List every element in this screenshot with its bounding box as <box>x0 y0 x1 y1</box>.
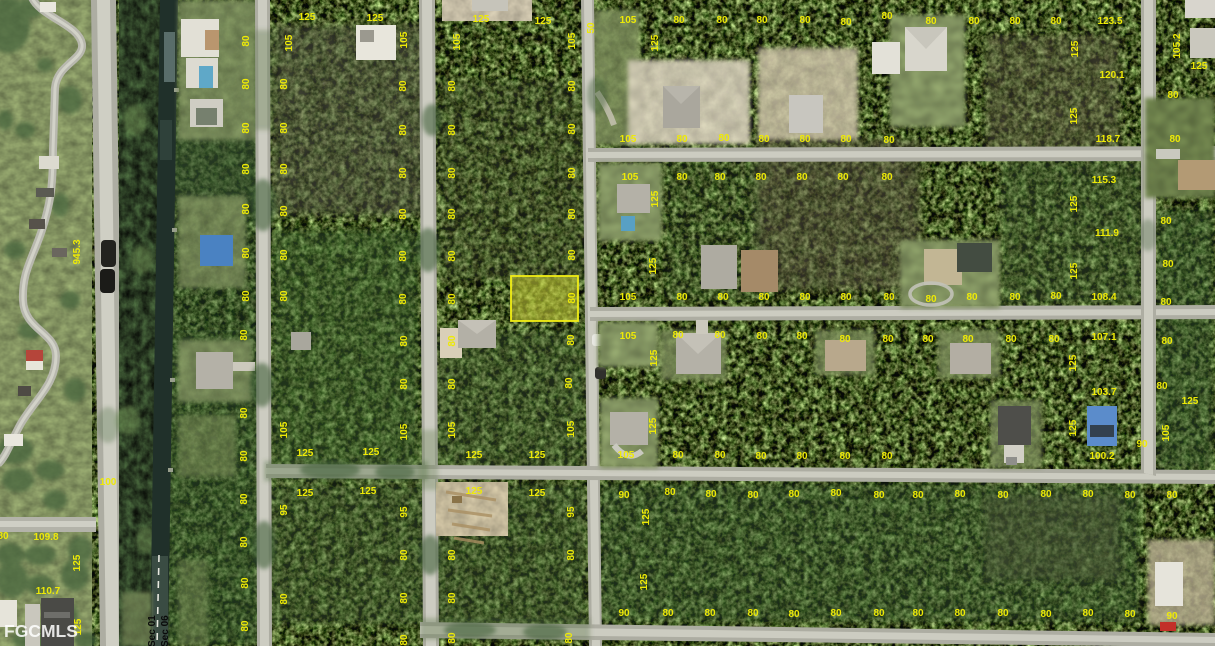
svg-text:80: 80 <box>447 592 458 604</box>
svg-text:80: 80 <box>447 335 458 347</box>
svg-text:80: 80 <box>447 378 458 390</box>
svg-text:105: 105 <box>566 420 577 437</box>
svg-text:125: 125 <box>1069 107 1080 124</box>
svg-text:105: 105 <box>399 31 410 48</box>
svg-text:80: 80 <box>756 15 768 26</box>
svg-text:80: 80 <box>997 608 1009 619</box>
svg-text:105: 105 <box>1161 424 1172 441</box>
svg-text:80: 80 <box>796 331 808 342</box>
svg-text:80: 80 <box>399 378 410 390</box>
svg-text:80: 80 <box>279 249 290 261</box>
svg-text:80: 80 <box>447 250 458 262</box>
svg-text:105: 105 <box>399 423 410 440</box>
svg-text:110.7: 110.7 <box>36 586 61 597</box>
svg-text:123.5: 123.5 <box>1097 16 1122 27</box>
svg-text:80: 80 <box>239 329 250 341</box>
svg-text:80: 80 <box>756 331 768 342</box>
svg-text:80: 80 <box>672 450 684 461</box>
svg-text:80: 80 <box>1124 609 1136 620</box>
svg-text:80: 80 <box>717 292 729 303</box>
svg-text:80: 80 <box>567 80 578 92</box>
svg-text:80: 80 <box>1160 297 1172 308</box>
svg-text:80: 80 <box>966 292 978 303</box>
svg-text:125: 125 <box>363 447 380 458</box>
svg-text:80: 80 <box>241 122 252 134</box>
svg-text:125: 125 <box>1069 262 1080 279</box>
svg-text:80: 80 <box>240 577 251 589</box>
svg-text:80: 80 <box>1169 134 1181 145</box>
svg-text:80: 80 <box>279 122 290 134</box>
svg-text:105: 105 <box>620 15 637 26</box>
svg-text:80: 80 <box>1082 608 1094 619</box>
svg-text:80: 80 <box>279 78 290 90</box>
svg-text:80: 80 <box>399 634 410 646</box>
svg-text:80: 80 <box>881 11 893 22</box>
svg-text:80: 80 <box>799 134 811 145</box>
svg-text:80: 80 <box>447 293 458 305</box>
svg-text:90: 90 <box>1166 611 1178 622</box>
svg-text:80: 80 <box>567 249 578 261</box>
svg-text:80: 80 <box>398 124 409 136</box>
svg-text:80: 80 <box>399 335 410 347</box>
svg-text:80: 80 <box>398 250 409 262</box>
svg-text:Sec 01: Sec 01 <box>147 615 158 646</box>
svg-text:80: 80 <box>758 134 770 145</box>
svg-text:100.2: 100.2 <box>1089 451 1114 462</box>
svg-text:80: 80 <box>755 172 767 183</box>
svg-text:95: 95 <box>399 506 410 518</box>
svg-text:80: 80 <box>241 247 252 259</box>
svg-text:80: 80 <box>840 134 852 145</box>
svg-text:80: 80 <box>676 292 688 303</box>
svg-text:125: 125 <box>648 417 659 434</box>
svg-text:945.3: 945.3 <box>72 239 83 264</box>
svg-text:105: 105 <box>618 450 635 461</box>
svg-text:80: 80 <box>799 15 811 26</box>
svg-text:80: 80 <box>954 489 966 500</box>
svg-text:80: 80 <box>758 292 770 303</box>
svg-text:80: 80 <box>564 632 575 644</box>
svg-text:80: 80 <box>788 609 800 620</box>
svg-text:80: 80 <box>447 167 458 179</box>
svg-text:125: 125 <box>360 486 377 497</box>
svg-text:80: 80 <box>716 15 728 26</box>
svg-text:80: 80 <box>840 292 852 303</box>
svg-text:80: 80 <box>398 80 409 92</box>
svg-text:125: 125 <box>535 16 552 27</box>
svg-text:125: 125 <box>1069 195 1080 212</box>
svg-text:80: 80 <box>1050 291 1062 302</box>
svg-text:80: 80 <box>714 172 726 183</box>
svg-text:80: 80 <box>839 334 851 345</box>
svg-text:80: 80 <box>1166 490 1178 501</box>
svg-text:80: 80 <box>922 334 934 345</box>
svg-text:80: 80 <box>1048 334 1060 345</box>
svg-text:80: 80 <box>0 531 9 542</box>
svg-text:80: 80 <box>1082 489 1094 500</box>
svg-text:125: 125 <box>648 257 659 274</box>
svg-text:125: 125 <box>473 14 490 25</box>
svg-text:80: 80 <box>447 208 458 220</box>
svg-text:105: 105 <box>452 33 463 50</box>
svg-text:80: 80 <box>1167 90 1179 101</box>
svg-text:80: 80 <box>912 490 924 501</box>
svg-text:80: 80 <box>840 17 852 28</box>
svg-text:80: 80 <box>241 163 252 175</box>
svg-text:80: 80 <box>447 632 458 644</box>
svg-text:125: 125 <box>529 488 546 499</box>
svg-text:80: 80 <box>925 16 937 27</box>
svg-text:80: 80 <box>837 172 849 183</box>
svg-text:90: 90 <box>618 490 630 501</box>
svg-text:105: 105 <box>284 34 295 51</box>
svg-text:125: 125 <box>297 448 314 459</box>
svg-text:80: 80 <box>788 489 800 500</box>
svg-text:125: 125 <box>72 554 83 571</box>
svg-text:Sec 06: Sec 06 <box>160 615 171 646</box>
svg-text:80: 80 <box>912 608 924 619</box>
svg-text:80: 80 <box>968 16 980 27</box>
svg-text:105: 105 <box>620 292 637 303</box>
svg-text:80: 80 <box>239 450 250 462</box>
svg-text:125: 125 <box>641 508 652 525</box>
svg-text:105: 105 <box>622 172 639 183</box>
svg-text:80: 80 <box>796 172 808 183</box>
svg-text:125: 125 <box>1070 40 1081 57</box>
svg-text:108.4: 108.4 <box>1091 292 1116 303</box>
svg-text:80: 80 <box>676 134 688 145</box>
svg-text:120.1: 120.1 <box>1099 70 1124 81</box>
svg-text:80: 80 <box>447 124 458 136</box>
svg-text:80: 80 <box>239 536 250 548</box>
svg-text:125: 125 <box>649 349 660 366</box>
svg-text:80: 80 <box>1040 609 1052 620</box>
svg-text:80: 80 <box>398 208 409 220</box>
svg-text:80: 80 <box>796 451 808 462</box>
svg-text:80: 80 <box>398 293 409 305</box>
svg-text:125: 125 <box>1182 396 1199 407</box>
svg-text:80: 80 <box>799 292 811 303</box>
svg-text:80: 80 <box>839 451 851 462</box>
svg-text:80: 80 <box>705 489 717 500</box>
svg-text:80: 80 <box>664 487 676 498</box>
svg-text:125: 125 <box>650 190 661 207</box>
svg-text:80: 80 <box>883 135 895 146</box>
svg-text:80: 80 <box>676 172 688 183</box>
svg-text:80: 80 <box>672 330 684 341</box>
svg-text:80: 80 <box>873 608 885 619</box>
svg-text:80: 80 <box>714 450 726 461</box>
svg-text:80: 80 <box>1162 259 1174 270</box>
svg-text:80: 80 <box>755 451 767 462</box>
svg-text:80: 80 <box>399 592 410 604</box>
svg-text:80: 80 <box>883 292 895 303</box>
svg-text:107.1: 107.1 <box>1091 332 1116 343</box>
svg-text:80: 80 <box>564 377 575 389</box>
svg-text:90: 90 <box>1136 439 1148 450</box>
svg-text:80: 80 <box>1040 489 1052 500</box>
svg-text:109.8: 109.8 <box>33 532 58 543</box>
svg-text:80: 80 <box>279 593 290 605</box>
svg-text:125: 125 <box>367 13 384 24</box>
svg-text:80: 80 <box>567 123 578 135</box>
svg-text:80: 80 <box>279 205 290 217</box>
svg-text:80: 80 <box>830 488 842 499</box>
svg-text:80: 80 <box>881 172 893 183</box>
svg-text:125: 125 <box>639 573 650 590</box>
svg-text:125: 125 <box>529 450 546 461</box>
svg-text:FGCMLS: FGCMLS <box>4 621 78 641</box>
svg-text:80: 80 <box>718 133 730 144</box>
svg-text:80: 80 <box>662 608 674 619</box>
svg-text:80: 80 <box>447 80 458 92</box>
svg-text:125: 125 <box>299 12 316 23</box>
svg-text:80: 80 <box>1156 381 1168 392</box>
svg-text:80: 80 <box>241 78 252 90</box>
svg-text:80: 80 <box>704 608 716 619</box>
svg-text:105: 105 <box>447 421 458 438</box>
svg-text:95: 95 <box>566 506 577 518</box>
svg-text:80: 80 <box>962 334 974 345</box>
svg-text:80: 80 <box>830 608 842 619</box>
svg-text:105: 105 <box>620 331 637 342</box>
svg-text:80: 80 <box>279 163 290 175</box>
svg-text:80: 80 <box>1005 334 1017 345</box>
svg-text:80: 80 <box>1009 16 1021 27</box>
svg-text:111.9: 111.9 <box>1095 228 1119 239</box>
svg-text:80: 80 <box>882 334 894 345</box>
svg-text:80: 80 <box>566 334 577 346</box>
svg-text:80: 80 <box>1124 490 1136 501</box>
svg-text:105: 105 <box>620 134 637 145</box>
svg-text:80: 80 <box>566 549 577 561</box>
svg-text:80: 80 <box>241 290 252 302</box>
svg-text:80: 80 <box>567 292 578 304</box>
svg-text:80: 80 <box>673 15 685 26</box>
svg-text:80: 80 <box>447 549 458 561</box>
svg-text:103.7: 103.7 <box>1091 387 1116 398</box>
svg-text:90: 90 <box>618 608 630 619</box>
svg-text:125: 125 <box>1191 61 1208 72</box>
svg-text:50: 50 <box>586 22 597 34</box>
svg-text:80: 80 <box>997 490 1009 501</box>
svg-text:80: 80 <box>398 167 409 179</box>
svg-text:80: 80 <box>279 290 290 302</box>
svg-text:125: 125 <box>466 450 483 461</box>
svg-text:125: 125 <box>466 486 483 497</box>
svg-text:105: 105 <box>279 421 290 438</box>
svg-text:80: 80 <box>567 167 578 179</box>
svg-text:80: 80 <box>1009 292 1021 303</box>
svg-text:80: 80 <box>241 203 252 215</box>
svg-text:115.3: 115.3 <box>1092 175 1117 186</box>
svg-text:80: 80 <box>241 35 252 47</box>
svg-text:80: 80 <box>925 294 937 305</box>
svg-text:95: 95 <box>279 504 290 516</box>
svg-text:80: 80 <box>1161 336 1173 347</box>
svg-text:80: 80 <box>1050 16 1062 27</box>
svg-text:80: 80 <box>239 407 250 419</box>
svg-text:80: 80 <box>567 208 578 220</box>
svg-text:80: 80 <box>881 451 893 462</box>
svg-text:80: 80 <box>239 493 250 505</box>
svg-text:125: 125 <box>297 488 314 499</box>
svg-text:80: 80 <box>747 490 759 501</box>
svg-text:125: 125 <box>1068 419 1079 436</box>
svg-text:125: 125 <box>650 34 661 51</box>
svg-text:80: 80 <box>399 549 410 561</box>
svg-text:80: 80 <box>240 620 251 632</box>
svg-text:125: 125 <box>1068 354 1079 371</box>
svg-text:105: 105 <box>567 32 578 49</box>
svg-text:80: 80 <box>954 608 966 619</box>
svg-text:100: 100 <box>100 477 117 488</box>
svg-text:80: 80 <box>747 608 759 619</box>
svg-text:118.7: 118.7 <box>1096 134 1121 145</box>
svg-text:80: 80 <box>873 490 885 501</box>
svg-text:80: 80 <box>714 330 726 341</box>
svg-text:80: 80 <box>1160 216 1172 227</box>
svg-text:105.2: 105.2 <box>1172 33 1183 58</box>
